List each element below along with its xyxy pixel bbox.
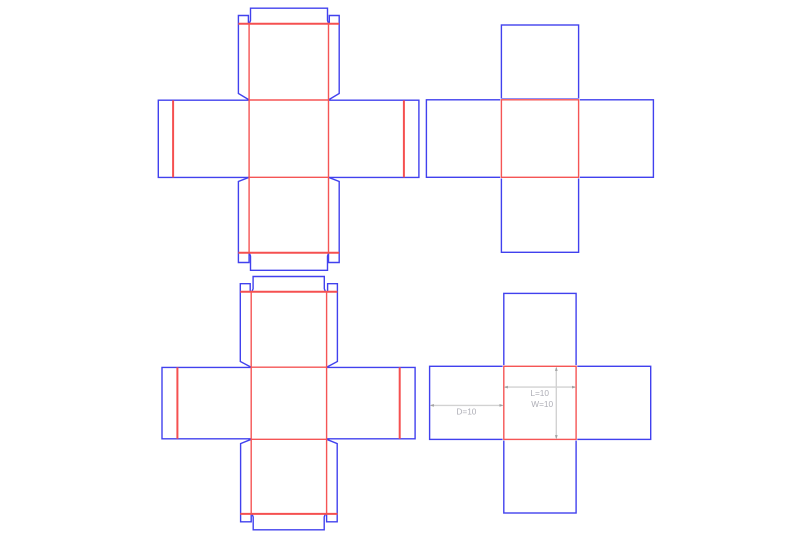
svg-text:L=10: L=10 bbox=[530, 388, 549, 398]
svg-text:W=10: W=10 bbox=[531, 399, 553, 409]
svg-text:D=10: D=10 bbox=[456, 406, 476, 416]
